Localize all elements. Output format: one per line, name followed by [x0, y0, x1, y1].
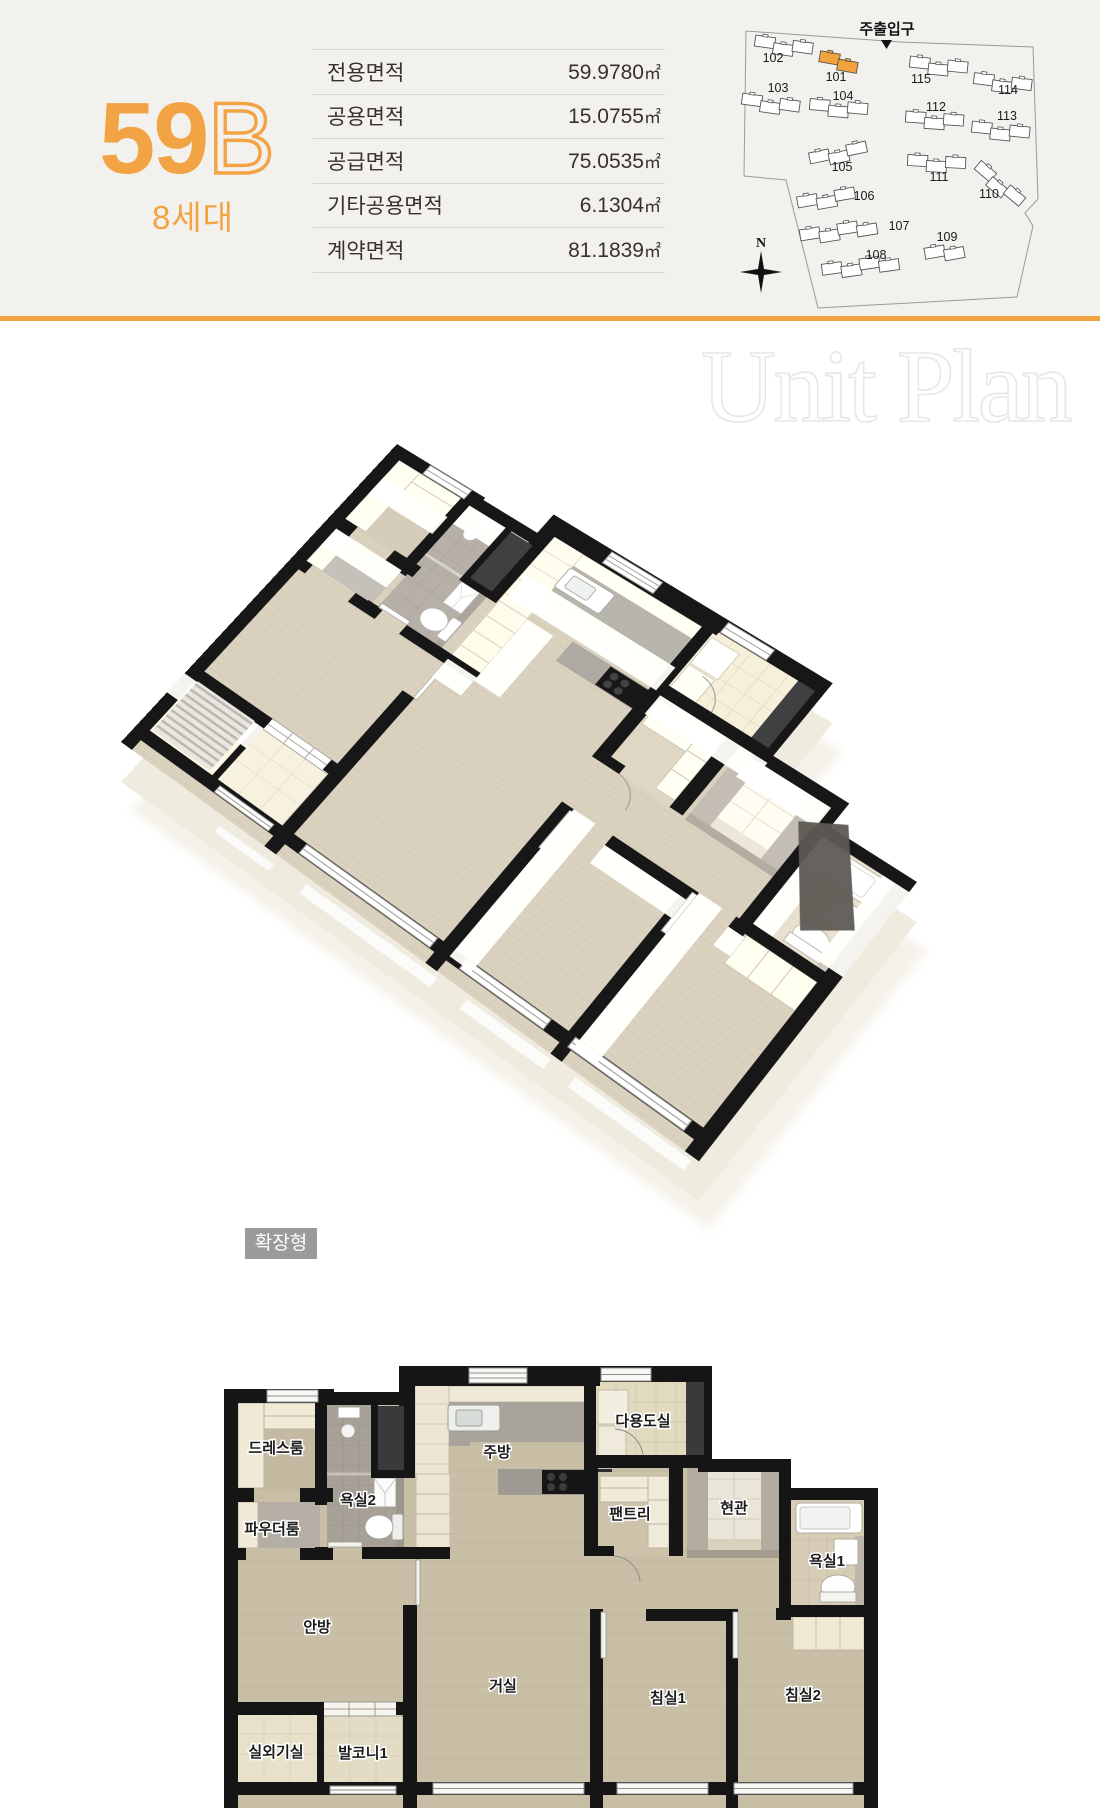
svg-text:거실: 거실 — [489, 1678, 517, 1695]
svg-text:106: 106 — [854, 189, 875, 203]
svg-text:103: 103 — [768, 81, 789, 95]
svg-text:주출입구: 주출입구 — [859, 21, 914, 38]
svg-text:104: 104 — [833, 89, 854, 103]
svg-text:욕실2: 욕실2 — [340, 1492, 376, 1509]
svg-text:111: 111 — [929, 170, 948, 184]
svg-text:115: 115 — [911, 72, 931, 86]
svg-text:발코니1: 발코니1 — [338, 1745, 388, 1762]
svg-text:파우더룸: 파우더룸 — [244, 1521, 299, 1538]
svg-text:112: 112 — [926, 100, 946, 114]
svg-text:다용도실: 다용도실 — [615, 1413, 670, 1430]
svg-text:드레스룸: 드레스룸 — [248, 1440, 303, 1457]
svg-text:109: 109 — [937, 230, 958, 244]
svg-text:주방: 주방 — [483, 1443, 511, 1461]
svg-text:114: 114 — [998, 83, 1018, 97]
svg-text:욕실1: 욕실1 — [809, 1553, 845, 1570]
svg-text:실외기실: 실외기실 — [248, 1743, 303, 1761]
svg-text:침실1: 침실1 — [650, 1690, 686, 1707]
svg-text:107: 107 — [889, 219, 910, 233]
svg-text:101: 101 — [826, 70, 847, 84]
svg-text:현관: 현관 — [720, 1500, 748, 1517]
svg-text:105: 105 — [832, 160, 853, 174]
svg-text:108: 108 — [866, 248, 887, 262]
svg-text:113: 113 — [997, 109, 1017, 123]
svg-text:안방: 안방 — [303, 1618, 331, 1636]
svg-text:102: 102 — [763, 51, 784, 65]
svg-text:110: 110 — [979, 187, 999, 201]
svg-text:N: N — [756, 236, 766, 251]
svg-text:침실2: 침실2 — [785, 1687, 821, 1704]
svg-text:팬트리: 팬트리 — [609, 1506, 650, 1523]
